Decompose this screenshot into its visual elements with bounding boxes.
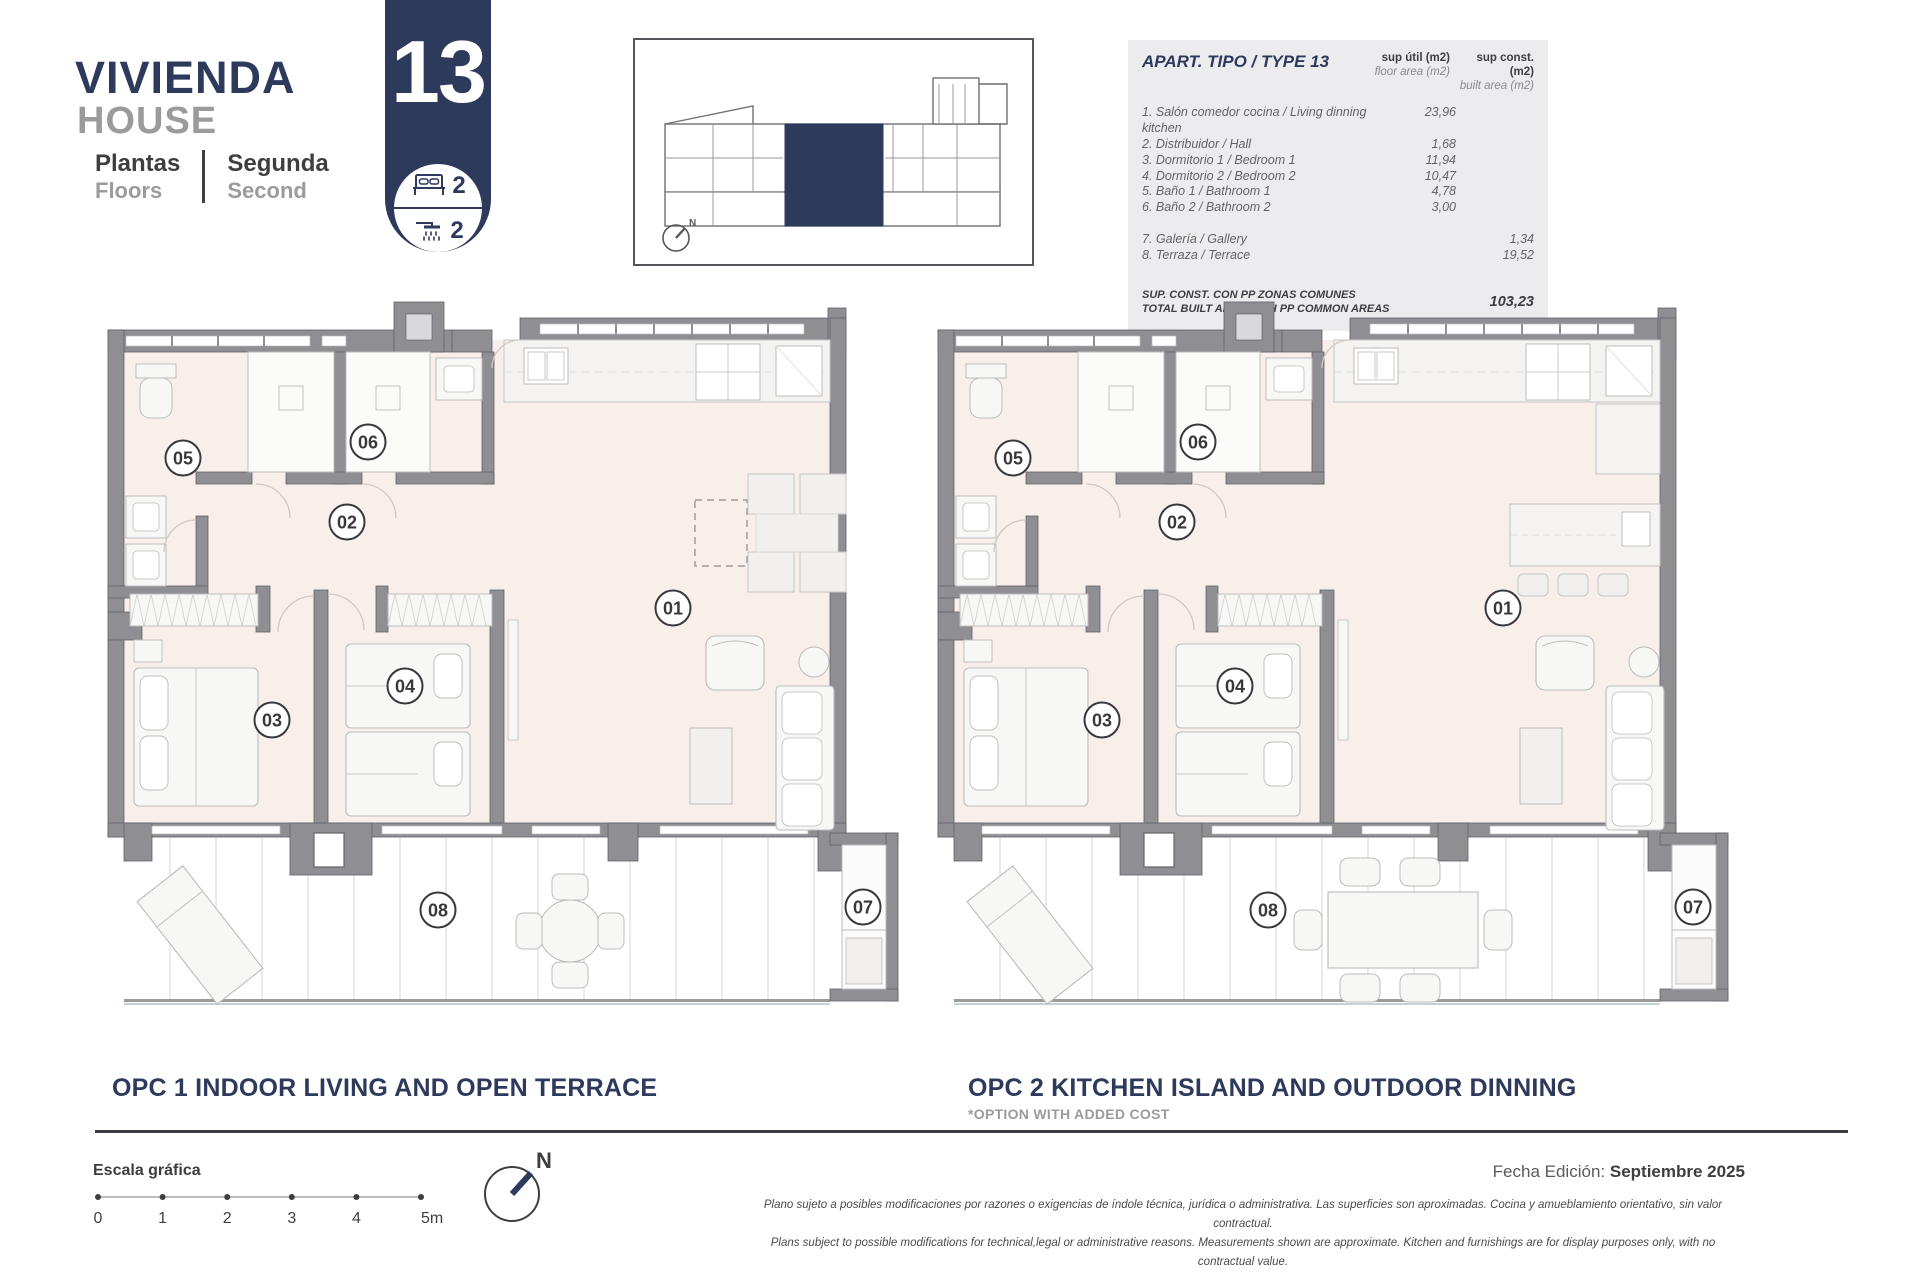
- table-row: 7. Galería / Gallery1,34: [1142, 232, 1534, 248]
- room-circle-05: 05: [166, 441, 201, 476]
- floor-value-es: Segunda: [227, 150, 328, 178]
- floors-label-es: Plantas: [95, 150, 180, 178]
- svg-text:04: 04: [395, 676, 415, 696]
- disclaimer: Plano sujeto a posibles modificaciones p…: [762, 1196, 1724, 1272]
- svg-text:07: 07: [853, 897, 873, 917]
- area-table-rows: 1. Salón comedor cocina / Living dinning…: [1142, 105, 1534, 263]
- kitchen-counter: [1334, 340, 1660, 402]
- bedroom-count: 2: [452, 172, 465, 200]
- floor-plan-opc1: 0102030405060708: [100, 290, 900, 1035]
- svg-text:05: 05: [173, 448, 193, 468]
- room-circle-01: 01: [1486, 591, 1521, 626]
- table-row-spacer: [1142, 216, 1534, 232]
- svg-text:5m: 5m: [421, 1210, 443, 1227]
- svg-text:N: N: [689, 218, 696, 229]
- svg-text:3: 3: [287, 1210, 296, 1227]
- room-circle-03: 03: [1085, 703, 1120, 738]
- table-row: 8. Terraza / Terrace19,52: [1142, 248, 1534, 264]
- svg-text:07: 07: [1683, 897, 1703, 917]
- shower-icon: [412, 217, 446, 245]
- page-title-es: VIVIENDA: [75, 52, 296, 104]
- room-circle-08: 08: [1251, 893, 1286, 928]
- opc2-subtitle: *OPTION WITH ADDED COST: [968, 1106, 1170, 1122]
- opc2-title: OPC 2 KITCHEN ISLAND AND OUTDOOR DINNING: [968, 1074, 1576, 1103]
- unit-badge: 13 2: [385, 0, 491, 252]
- divider: [202, 150, 205, 203]
- svg-text:06: 06: [1188, 432, 1208, 452]
- svg-text:1: 1: [158, 1210, 167, 1227]
- scale-bar-label: Escala gráfica: [93, 1162, 201, 1180]
- svg-text:03: 03: [1092, 710, 1112, 730]
- svg-text:08: 08: [1258, 900, 1278, 920]
- key-plan-drawing: N: [635, 40, 1032, 264]
- table-row: 3. Dormitorio 1 / Bedroom 111,94: [1142, 153, 1534, 169]
- room-circle-02: 02: [330, 505, 365, 540]
- table-row: 6. Baño 2 / Bathroom 23,00: [1142, 200, 1534, 216]
- room-circle-02: 02: [1160, 505, 1195, 540]
- room-circle-07: 07: [1676, 890, 1711, 925]
- svg-text:01: 01: [663, 598, 683, 618]
- wardrobe: [388, 594, 492, 626]
- opc1-title: OPC 1 INDOOR LIVING AND OPEN TERRACE: [112, 1074, 657, 1103]
- svg-text:0: 0: [94, 1210, 103, 1227]
- plan-sheet: { "header": { "title_es": "VIVIENDA", "t…: [0, 0, 1920, 1280]
- svg-text:08: 08: [428, 900, 448, 920]
- plan-drawing-opc2: 0102030405060708: [930, 290, 1730, 1035]
- north-compass: N: [480, 1150, 560, 1235]
- key-plan-box: N: [633, 38, 1034, 266]
- page-title-en: HOUSE: [77, 100, 217, 143]
- unit-number: 13: [385, 28, 491, 116]
- svg-text:03: 03: [262, 710, 282, 730]
- room-circle-03: 03: [255, 703, 290, 738]
- area-table-title: APART. TIPO / TYPE 13: [1142, 52, 1372, 93]
- room-circle-01: 01: [656, 591, 691, 626]
- room-circle-08: 08: [421, 893, 456, 928]
- room-circle-06: 06: [351, 425, 386, 460]
- svg-text:01: 01: [1493, 598, 1513, 618]
- scale-bar: 012345m: [88, 1183, 448, 1236]
- svg-text:02: 02: [1167, 512, 1187, 532]
- floors-label-en: Floors: [95, 178, 180, 203]
- bed-icon: [410, 173, 448, 199]
- kitchen-counter: [504, 340, 830, 402]
- floor-indicator: Plantas Floors Segunda Second: [95, 150, 329, 203]
- table-row: 4. Dormitorio 2 / Bedroom 210,47: [1142, 169, 1534, 185]
- svg-text:05: 05: [1003, 448, 1023, 468]
- plan-drawing-opc1: 0102030405060708: [100, 290, 900, 1035]
- table-row: 5. Baño 1 / Bathroom 14,78: [1142, 184, 1534, 200]
- svg-text:02: 02: [337, 512, 357, 532]
- highlighted-unit: [785, 124, 883, 226]
- room-circle-04: 04: [1218, 669, 1253, 704]
- footer-rule: [95, 1130, 1848, 1133]
- room-circle-06: 06: [1181, 425, 1216, 460]
- wardrobe: [130, 594, 258, 626]
- table-row: 2. Distribuidor / Hall1,68: [1142, 137, 1534, 153]
- wardrobe: [960, 594, 1088, 626]
- svg-text:N: N: [536, 1150, 552, 1173]
- svg-text:2: 2: [223, 1210, 232, 1227]
- bed-bath-badge: 2 2: [394, 164, 482, 252]
- svg-text:04: 04: [1225, 676, 1245, 696]
- svg-text:06: 06: [358, 432, 378, 452]
- room-circle-05: 05: [996, 441, 1031, 476]
- bathroom-count: 2: [450, 217, 463, 245]
- wardrobe: [1218, 594, 1322, 626]
- svg-text:4: 4: [352, 1210, 361, 1227]
- col-built-area: sup const. (m2) built area (m2): [1456, 52, 1534, 93]
- room-circle-04: 04: [388, 669, 423, 704]
- room-circle-07: 07: [846, 890, 881, 925]
- edition-date: Fecha Edición: Septiembre 2025: [1493, 1162, 1745, 1182]
- table-row: 1. Salón comedor cocina / Living dinning…: [1142, 105, 1534, 137]
- floor-value-en: Second: [227, 178, 328, 203]
- floor-plan-opc2: 0102030405060708: [930, 290, 1730, 1035]
- area-table: APART. TIPO / TYPE 13 sup útil (m2) floo…: [1128, 40, 1548, 331]
- col-floor-area: sup útil (m2) floor area (m2): [1372, 52, 1450, 93]
